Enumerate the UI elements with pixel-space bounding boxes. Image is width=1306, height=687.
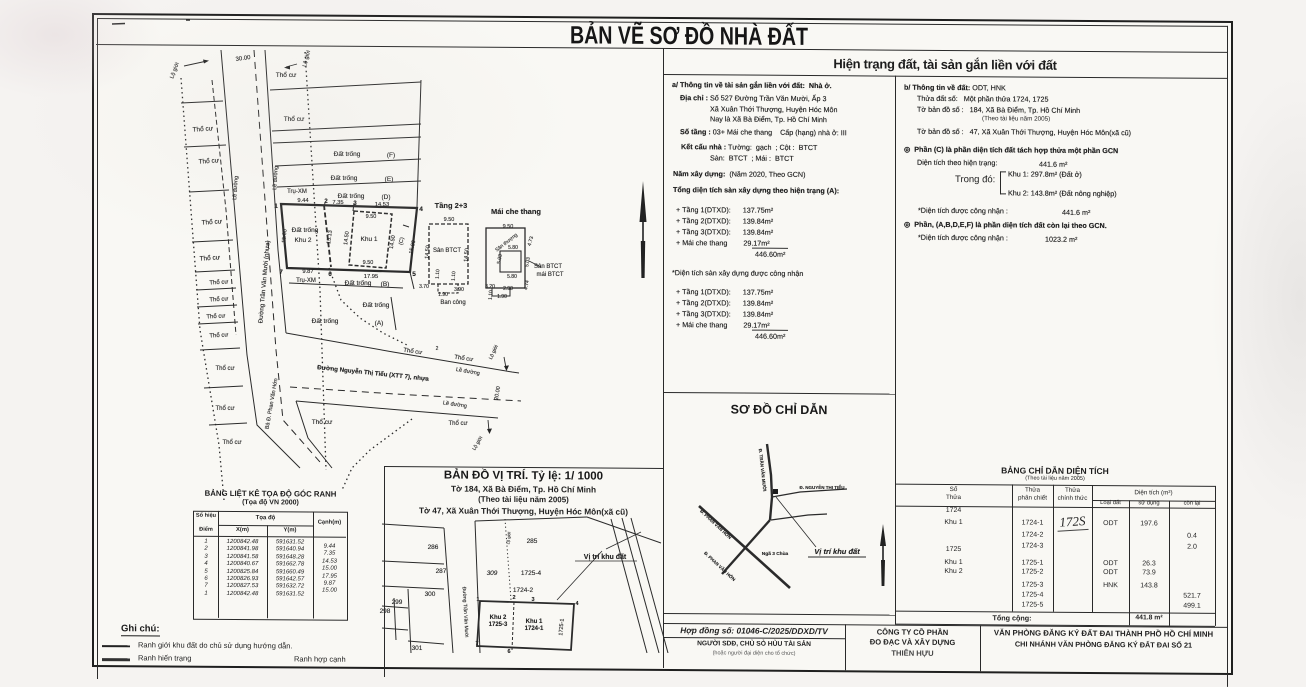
svg-text:Thổ cư: Thổ cư: [209, 278, 228, 286]
svg-text:14.50: 14.50: [343, 231, 351, 245]
svg-text:Đường Trần Văn Mười (nhựa): Đường Trần Văn Mười (nhựa): [257, 240, 271, 323]
svg-text:7.35: 7.35: [332, 200, 343, 206]
svg-text:Thổ cư: Thổ cư: [215, 405, 234, 412]
svg-text:5.80: 5.80: [508, 245, 518, 251]
svg-text:5.03: 5.03: [496, 254, 504, 265]
svg-text:Sân BTCT: Sân BTCT: [433, 248, 461, 254]
svg-text:1724-2: 1724-2: [513, 587, 534, 594]
svg-text:1724-1: 1724-1: [525, 626, 544, 632]
svg-text:285: 285: [527, 538, 538, 545]
svg-text:Thổ cư: Thổ cư: [199, 253, 221, 262]
svg-text:301: 301: [412, 645, 423, 652]
svg-text:9.44: 9.44: [297, 198, 309, 204]
svg-text:7: 7: [475, 641, 478, 647]
svg-text:Lề đường: Lề đường: [442, 400, 467, 409]
svg-text:Lộ giới: Lộ giới: [471, 435, 484, 451]
svg-text:9.50: 9.50: [366, 214, 377, 220]
svg-text:Bà Đ. Phan Văn Hớn: Bà Đ. Phan Văn Hớn: [265, 378, 280, 430]
svg-text:Khu 1: Khu 1: [361, 236, 378, 243]
svg-text:5: 5: [412, 271, 416, 278]
svg-text:9.50: 9.50: [444, 217, 455, 223]
svg-text:mái BTCT: mái BTCT: [537, 272, 564, 278]
svg-text:Đ. NGUYỄN THỊ TIỂU: Đ. NGUYỄN THỊ TIỂU: [799, 484, 844, 490]
svg-text:Thổ cư: Thổ cư: [448, 420, 467, 427]
svg-text:15.00: 15.00: [281, 229, 288, 243]
svg-text:9.50: 9.50: [503, 224, 514, 230]
svg-text:Lộ giới: Lộ giới: [505, 531, 511, 544]
svg-text:Trụ-XM: Trụ-XM: [296, 278, 316, 284]
svg-text:Thổ cư: Thổ cư: [284, 115, 305, 123]
svg-text:1.10: 1.10: [451, 271, 458, 281]
svg-text:Đ. PHAN VĂN HỚN: Đ. PHAN VĂN HỚN: [699, 507, 734, 540]
svg-text:1: 1: [476, 597, 479, 603]
svg-text:1.90: 1.90: [497, 294, 507, 300]
svg-text:9.50: 9.50: [363, 260, 374, 266]
svg-text:Khu 1: Khu 1: [526, 619, 543, 625]
svg-text:Đất trống: Đất trống: [345, 278, 372, 287]
svg-text:2.90: 2.90: [503, 286, 513, 292]
svg-text:7: 7: [279, 269, 283, 276]
svg-text:(D): (D): [381, 194, 390, 201]
svg-text:Thổ cư: Thổ cư: [312, 418, 333, 426]
svg-text:1725-4: 1725-4: [521, 570, 542, 577]
svg-text:Thổ cư: Thổ cư: [209, 331, 228, 339]
svg-text:1: 1: [274, 203, 278, 210]
svg-text:3.70: 3.70: [419, 284, 429, 290]
svg-text:Đất trống: Đất trống: [292, 225, 319, 234]
svg-text:Đất trống: Đất trống: [338, 191, 365, 200]
svg-text:Đường Trần Văn Mười: Đường Trần Văn Mười: [461, 587, 470, 638]
svg-text:15.00: 15.00: [409, 240, 418, 255]
svg-text:Thổ cư: Thổ cư: [403, 347, 423, 357]
svg-text:20.00: 20.00: [494, 386, 502, 401]
svg-text:14.53: 14.53: [375, 202, 390, 208]
svg-text:2: 2: [512, 595, 515, 601]
svg-text:30.00: 30.00: [235, 55, 251, 63]
svg-text:3: 3: [531, 597, 534, 603]
svg-text:Lề đường: Lề đường: [232, 176, 240, 200]
svg-text:(B): (B): [381, 281, 390, 288]
svg-text:Thổ cư: Thổ cư: [198, 156, 220, 165]
svg-text:Khu 2: Khu 2: [490, 615, 507, 621]
svg-text:1.10: 1.10: [488, 290, 495, 300]
svg-text:287: 287: [436, 568, 447, 575]
svg-text:Vị trí khu đất: Vị trí khu đất: [814, 547, 860, 556]
svg-text:Thổ cư: Thổ cư: [215, 365, 234, 372]
svg-text:309: 309: [487, 570, 498, 577]
svg-text:Đất trống: Đất trống: [363, 300, 390, 309]
svg-text:Vị trí khu đất: Vị trí khu đất: [584, 553, 627, 561]
svg-text:1.10: 1.10: [435, 269, 442, 279]
svg-text:Thổ cư: Thổ cư: [222, 439, 241, 446]
svg-text:Thổ cư: Thổ cư: [201, 217, 223, 226]
svg-text:Thổ cư: Thổ cư: [192, 124, 214, 133]
svg-text:Đ. PHAN VĂN HỚN: Đ. PHAN VĂN HỚN: [703, 549, 738, 582]
svg-text:4: 4: [419, 206, 423, 213]
svg-text:(F): (F): [387, 152, 395, 159]
svg-text:9.87: 9.87: [302, 269, 313, 275]
svg-text:Ngã 3 Chùa: Ngã 3 Chùa: [762, 551, 789, 557]
svg-text:300: 300: [425, 591, 436, 598]
svg-text:Lộ giới: Lộ giới: [169, 62, 180, 80]
svg-text:(A): (A): [375, 320, 384, 327]
svg-text:4: 4: [575, 601, 579, 607]
svg-text:3.90: 3.90: [454, 287, 464, 293]
svg-text:5.80: 5.80: [507, 274, 517, 280]
svg-text:Ban công: Ban công: [440, 300, 465, 306]
svg-text:Khu 2: Khu 2: [295, 237, 312, 244]
svg-text:14.50: 14.50: [389, 235, 397, 250]
svg-text:Đất trống: Đất trống: [331, 173, 358, 182]
svg-text:Thổ cư: Thổ cư: [209, 295, 228, 303]
svg-text:6: 6: [507, 649, 510, 653]
svg-text:Đất trống: Đất trống: [312, 316, 339, 325]
svg-text:Trụ-XM: Trụ-XM: [287, 189, 307, 195]
svg-text:14.50: 14.50: [463, 248, 470, 262]
svg-text:Thổ cư: Thổ cư: [454, 354, 474, 364]
svg-text:5.03: 5.03: [524, 257, 532, 268]
svg-text:Đường Nguyễn Thị Tiểu (XTT 7),: Đường Nguyễn Thị Tiểu (XTT 7), nhựa: [317, 364, 430, 383]
svg-text:2: 2: [436, 346, 439, 352]
svg-text:Thổ cư: Thổ cư: [276, 71, 297, 79]
svg-text:1725-1: 1725-1: [558, 618, 565, 636]
svg-text:Lộ giới: Lộ giới: [488, 344, 500, 360]
svg-text:Lộ giới: Lộ giới: [302, 50, 312, 68]
svg-text:298: 298: [380, 608, 391, 615]
svg-text:4.73: 4.73: [527, 236, 535, 247]
svg-text:3.20: 3.20: [485, 284, 495, 290]
svg-text:Thổ cư: Thổ cư: [206, 312, 225, 320]
svg-text:4.74: 4.74: [523, 280, 531, 291]
svg-text:299: 299: [392, 599, 403, 606]
svg-text:1.90: 1.90: [438, 292, 448, 298]
svg-text:Lề đường: Lề đường: [455, 367, 480, 377]
svg-text:1725-3: 1725-3: [489, 622, 508, 628]
svg-text:15.13: 15.13: [326, 230, 334, 244]
svg-text:Sân BTCT: Sân BTCT: [534, 264, 562, 270]
svg-text:Đất trống: Đất trống: [334, 149, 361, 158]
svg-text:Mái che thang: Mái che thang: [491, 207, 541, 216]
svg-text:286: 286: [428, 544, 439, 551]
svg-text:(E): (E): [385, 176, 394, 183]
svg-text:(C): (C): [398, 237, 405, 246]
svg-text:14.50: 14.50: [424, 245, 431, 259]
svg-text:2: 2: [324, 199, 328, 205]
svg-text:Tầng 2+3: Tầng 2+3: [435, 201, 468, 210]
